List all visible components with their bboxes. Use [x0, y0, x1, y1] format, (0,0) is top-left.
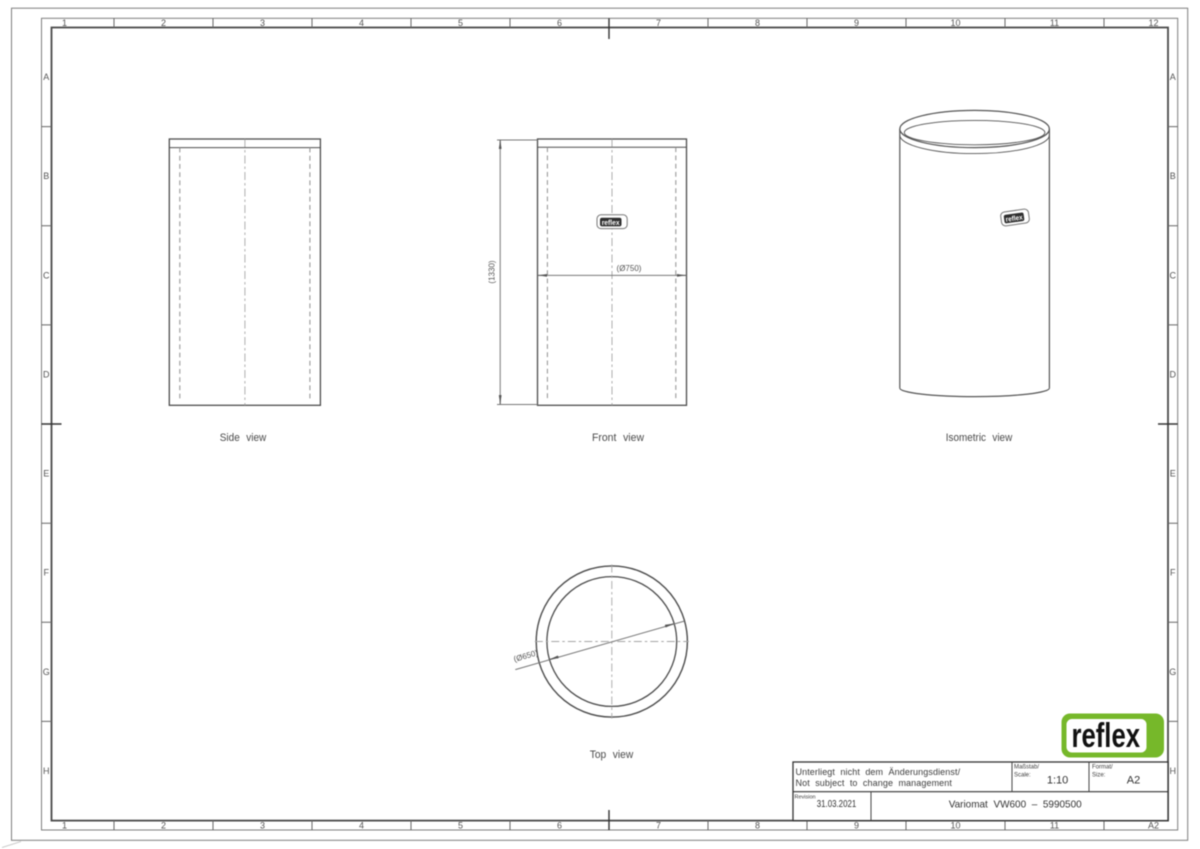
svg-text:4: 4: [359, 821, 364, 831]
svg-text:C: C: [43, 270, 50, 280]
svg-text:A2: A2: [1127, 774, 1140, 786]
svg-text:3: 3: [260, 821, 265, 831]
svg-text:6: 6: [557, 821, 562, 831]
svg-text:G: G: [43, 667, 50, 677]
svg-text:9: 9: [854, 821, 859, 831]
svg-text:G: G: [1169, 667, 1176, 677]
svg-text:7: 7: [656, 821, 661, 831]
svg-text:Scale:: Scale:: [1014, 772, 1031, 778]
svg-text:reflex: reflex: [602, 220, 620, 227]
svg-text:2: 2: [161, 821, 166, 831]
svg-text:Top view: Top view: [590, 749, 634, 761]
svg-text:Variomat VW600 – 5990500: Variomat VW600 – 5990500: [949, 799, 1082, 811]
svg-text:reflex: reflex: [1072, 717, 1141, 755]
svg-text:Isometric view: Isometric view: [946, 432, 1013, 444]
svg-text:D: D: [1169, 370, 1176, 380]
svg-text:Side view: Side view: [220, 432, 267, 444]
svg-text:A2: A2: [1148, 821, 1159, 831]
svg-text:11: 11: [1050, 18, 1059, 28]
svg-text:Size:: Size:: [1092, 772, 1106, 778]
svg-text:Maßstab/: Maßstab/: [1014, 765, 1039, 771]
svg-text:E: E: [1170, 469, 1176, 479]
svg-text:5: 5: [458, 821, 463, 831]
svg-text:8: 8: [755, 18, 760, 28]
svg-text:F: F: [44, 568, 50, 578]
svg-text:8: 8: [755, 821, 760, 831]
svg-text:9: 9: [854, 18, 859, 28]
svg-text:Unterliegt nicht dem Änderungs: Unterliegt nicht dem Änderungsdienst/: [796, 767, 961, 777]
svg-text:6: 6: [557, 18, 562, 28]
svg-text:(1330): (1330): [488, 260, 497, 283]
svg-text:C: C: [1169, 270, 1176, 280]
svg-text:7: 7: [656, 18, 661, 28]
svg-text:Format/: Format/: [1092, 765, 1113, 771]
svg-text:A: A: [1170, 72, 1176, 82]
svg-text:11: 11: [1050, 821, 1059, 831]
svg-text:5: 5: [458, 18, 463, 28]
svg-text:H: H: [43, 766, 50, 776]
svg-text:2: 2: [161, 18, 166, 28]
svg-text:10: 10: [950, 18, 960, 28]
svg-text:A: A: [43, 72, 49, 82]
svg-text:1:10: 1:10: [1047, 774, 1068, 786]
svg-text:F: F: [1170, 568, 1176, 578]
svg-text:Front view: Front view: [592, 432, 644, 444]
svg-text:1: 1: [62, 821, 67, 831]
svg-text:3: 3: [260, 18, 265, 28]
svg-text:10: 10: [950, 821, 960, 831]
svg-text:4: 4: [359, 18, 364, 28]
svg-text:B: B: [1170, 171, 1176, 181]
svg-text:12: 12: [1148, 18, 1158, 28]
svg-text:D: D: [43, 370, 50, 380]
svg-text:Revision: Revision: [795, 795, 816, 801]
svg-text:31.03.2021: 31.03.2021: [817, 799, 857, 810]
svg-text:B: B: [43, 171, 49, 181]
svg-text:E: E: [43, 469, 49, 479]
svg-text:Not subject to change manageme: Not subject to change management: [796, 778, 953, 788]
svg-text:H: H: [1169, 766, 1176, 776]
svg-text:1: 1: [62, 18, 67, 28]
svg-text:(Ø750): (Ø750): [617, 264, 642, 273]
